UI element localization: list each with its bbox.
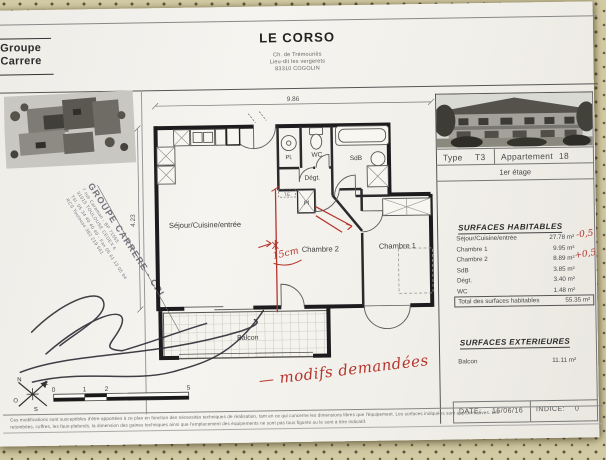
sejour-delta-annotation: -0,5 bbox=[576, 228, 594, 240]
surface-row: SdB 3.85 m² bbox=[457, 265, 575, 274]
surface-row: Chambre 1 9.95 m² bbox=[456, 244, 574, 253]
compass-s: S bbox=[34, 407, 38, 413]
title-block-cell-divider bbox=[494, 148, 495, 164]
photographed-floorplan-document: { "header": { "logo_line1": "Groupe", "l… bbox=[0, 0, 606, 455]
surface-value: 8.89 m² bbox=[553, 255, 574, 262]
scale-label-2: 2 bbox=[105, 386, 109, 393]
logo-rule-top bbox=[0, 38, 51, 40]
surface-value: 3.40 m² bbox=[553, 276, 574, 283]
surface-label: Dégt. bbox=[457, 277, 472, 284]
surface-value: 3.85 m² bbox=[553, 265, 574, 272]
surfaces-total-label: Total des surfaces habitables bbox=[458, 297, 539, 305]
scale-label-1: 1 bbox=[83, 386, 87, 393]
surface-label: Séjour/Cuisine/entrée bbox=[456, 235, 517, 243]
surfaces-total-value: 55.35 m² bbox=[565, 296, 590, 303]
floor-label: 1er étage bbox=[436, 166, 594, 177]
title-block-line-3 bbox=[436, 178, 594, 181]
surface-row: Séjour/Cuisine/entrée 27.78 m² bbox=[456, 234, 574, 243]
logo-line1: Groupe bbox=[0, 42, 41, 56]
surface-label: Balcon bbox=[458, 358, 477, 365]
project-title: LE CORSO bbox=[227, 29, 367, 46]
building-photo bbox=[436, 92, 593, 147]
surface-label: Chambre 2 bbox=[457, 256, 488, 263]
logo-line2: Carrere bbox=[0, 55, 41, 69]
surfaces-exterieures-heading: SURFACES EXTERIEURES bbox=[460, 337, 570, 350]
surface-label: WC bbox=[457, 288, 468, 295]
header-top-rule bbox=[0, 15, 597, 25]
company-logo: Groupe Carrere bbox=[0, 42, 42, 69]
dimension-top-label: 9.86 bbox=[287, 96, 300, 103]
scale-label-0: 0 bbox=[52, 387, 56, 394]
fridge-icon bbox=[226, 128, 239, 145]
compass-o: O bbox=[13, 398, 18, 404]
room-label-chambre1: Chambre 1 bbox=[379, 241, 416, 251]
surface-value: 9.95 m² bbox=[553, 244, 574, 251]
title-block-line-2 bbox=[436, 162, 594, 165]
surface-row: WC 1.48 m² bbox=[457, 286, 575, 295]
project-address-3: 83310 COGOLIN bbox=[228, 65, 368, 73]
apartment-label: Appartement bbox=[501, 151, 553, 162]
scale-label-5: 5 bbox=[187, 385, 191, 392]
surface-row: Balcon 11.11 m² bbox=[458, 357, 576, 366]
surfaces-habitables-heading: SURFACES HABITABLES bbox=[458, 222, 563, 235]
surface-row: Dégt. 3.40 m² bbox=[457, 276, 575, 285]
date-box-top bbox=[453, 399, 598, 402]
scale-bar: 0 1 2 5 bbox=[46, 382, 196, 406]
surface-value: 1.48 m² bbox=[554, 286, 575, 293]
paper-sheet: Groupe Carrere LE CORSO Ch. de Trémouriè… bbox=[0, 1, 599, 446]
type-label: Type bbox=[443, 152, 463, 162]
compass-n: N bbox=[17, 377, 21, 383]
chambre2-delta-annotation: +0,5 bbox=[574, 248, 597, 261]
toilet-icon bbox=[309, 128, 322, 135]
logo-rule-bottom bbox=[0, 74, 54, 76]
site-plan-thumbnail bbox=[4, 88, 137, 168]
room-label-sdb: SdB bbox=[350, 155, 362, 162]
surface-label: Chambre 1 bbox=[456, 245, 487, 252]
surface-row: Chambre 2 8.89 m² bbox=[457, 255, 575, 264]
surfaces-total-row: Total des surfaces habitables 55.35 m² bbox=[454, 294, 594, 307]
apartment-value: 18 bbox=[559, 151, 569, 161]
washbasin-icon bbox=[371, 152, 385, 166]
bed-dashed-icon bbox=[398, 248, 433, 294]
surface-label: SdB bbox=[457, 267, 469, 274]
room-label-wc: WC bbox=[311, 152, 322, 159]
surface-value: 27.78 m² bbox=[549, 234, 574, 241]
type-value: T3 bbox=[475, 152, 486, 162]
surface-value: 11.11 m² bbox=[552, 357, 576, 364]
